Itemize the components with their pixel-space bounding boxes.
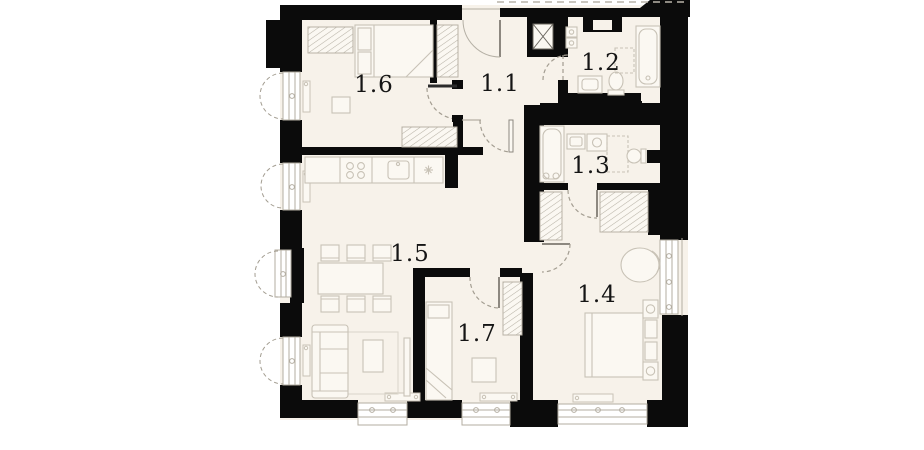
tv-console-icon (404, 338, 410, 396)
sofa-icon (312, 325, 348, 398)
bed-icon (426, 302, 452, 400)
wardrobe-icon (600, 192, 648, 232)
kitchen-counter-icon (305, 157, 443, 183)
chair-icon (373, 245, 391, 261)
washing-machine-icon (587, 134, 607, 151)
radiator-icon (303, 81, 310, 112)
room-label-1-5: 1.5 (390, 241, 430, 267)
bathtub-icon (636, 26, 660, 87)
bathtub-icon (540, 126, 564, 182)
room-label-1-1: 1.1 (480, 71, 520, 97)
wardrobe-icon (540, 192, 562, 240)
floor-plan-canvas: 1.1 1.2 1.3 1.4 1.5 1.6 1.7 (0, 0, 924, 450)
kitchen-sink-icon (388, 161, 409, 179)
room-label-1-6: 1.6 (354, 72, 394, 98)
room-label-1-3: 1.3 (571, 153, 611, 179)
radiator-icon (573, 394, 613, 402)
sink-icon (567, 134, 585, 149)
wardrobe-icon (503, 282, 522, 335)
ventilation-shaft-icon (533, 24, 553, 49)
chair-icon (347, 245, 365, 261)
coffee-table-icon (363, 340, 383, 372)
desk-icon (472, 358, 496, 382)
room-label-1-7: 1.7 (457, 321, 497, 347)
window-icon (283, 163, 300, 210)
window-swing-arcs (255, 73, 283, 384)
armchair-icon (621, 248, 660, 282)
chair-icon (347, 296, 365, 312)
sink-icon (578, 76, 602, 93)
nightstand-icon (643, 300, 658, 318)
wardrobe-icon (437, 25, 458, 77)
chair-icon (321, 296, 339, 312)
room-label-1-4: 1.4 (577, 282, 617, 308)
chair-icon (321, 245, 339, 261)
washing-machine-icon (566, 27, 577, 48)
desk-icon (332, 97, 350, 113)
wardrobe-icon (308, 27, 353, 53)
window-icon (275, 250, 291, 297)
bed-icon (355, 25, 433, 77)
floor-plan: 1.1 1.2 1.3 1.4 1.5 1.6 1.7 (0, 0, 924, 450)
toilet-icon (627, 149, 646, 163)
chair-icon (373, 296, 391, 312)
window-icon (358, 403, 407, 425)
window-icon (558, 404, 647, 424)
window-icon (283, 72, 300, 120)
window-icon (462, 403, 510, 425)
dining-table-icon (318, 263, 383, 294)
window-icon (283, 337, 300, 385)
radiator-icon (303, 345, 310, 376)
radiator-icon (480, 393, 517, 401)
wardrobe-icon (402, 127, 457, 147)
room-label-1-2: 1.2 (581, 50, 621, 76)
nightstand-icon (643, 362, 658, 380)
